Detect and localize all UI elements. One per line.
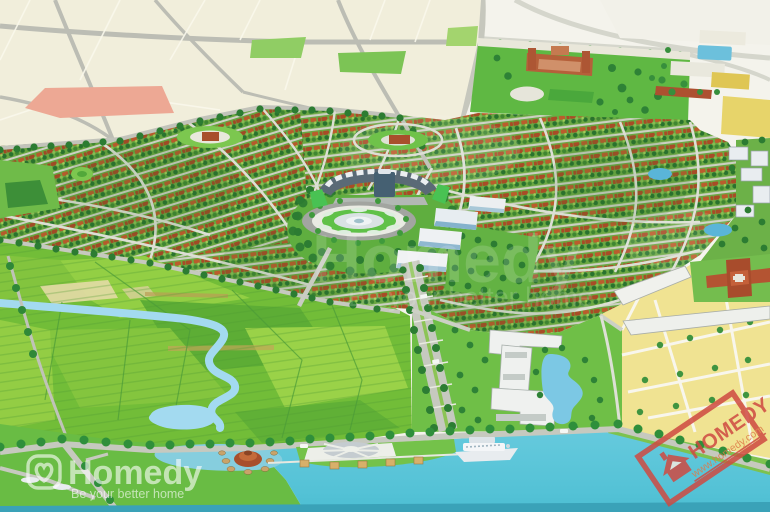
svg-text:Be your better home: Be your better home — [348, 282, 593, 312]
svg-text:Be your better home: Be your better home — [71, 487, 184, 501]
